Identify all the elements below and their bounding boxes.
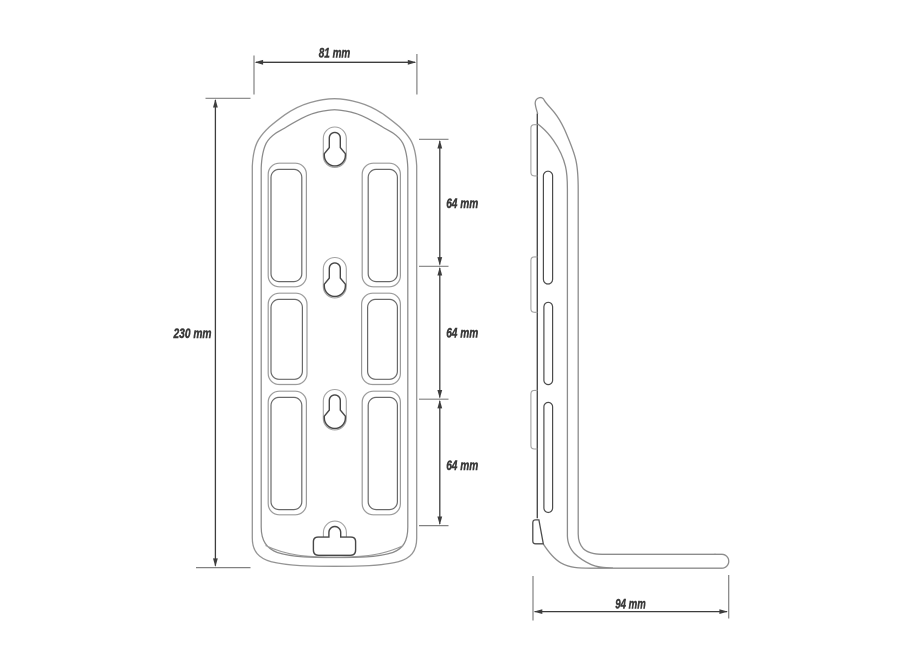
svg-text:64 mm: 64 mm xyxy=(446,458,478,474)
svg-text:81 mm: 81 mm xyxy=(319,46,351,62)
svg-text:94 mm: 94 mm xyxy=(615,596,646,612)
svg-text:64 mm: 64 mm xyxy=(446,196,478,212)
svg-text:230 mm: 230 mm xyxy=(173,326,212,342)
svg-text:64 mm: 64 mm xyxy=(446,325,478,341)
